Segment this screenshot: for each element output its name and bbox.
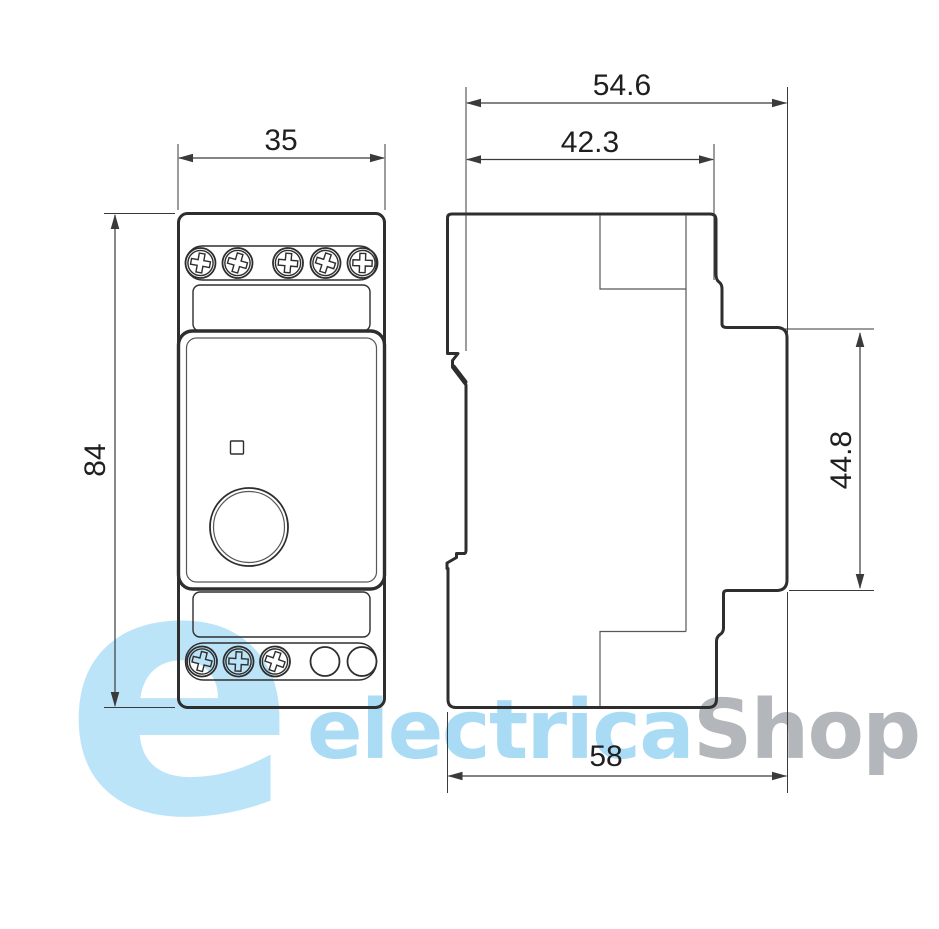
plain-terminal-hole	[348, 647, 377, 676]
brand-electrica: electrica	[307, 683, 693, 778]
dimension-side-overall-depth: 54.6	[466, 69, 788, 351]
arrowhead	[370, 154, 385, 163]
arrowhead	[111, 214, 120, 229]
side-view	[447, 214, 787, 708]
dim-label-84: 84	[79, 443, 112, 476]
arrowhead	[466, 155, 481, 164]
dim-label-58: 58	[589, 740, 622, 773]
dim-label-42-3: 42.3	[561, 126, 619, 159]
dimension-front-width: 35	[178, 124, 385, 210]
arrowhead	[178, 154, 193, 163]
arrowhead	[856, 574, 865, 589]
dim-label-35: 35	[264, 124, 297, 157]
dim-label-54-6: 54.6	[593, 69, 651, 102]
din-clip-wedge	[454, 367, 466, 382]
arrowhead	[466, 99, 481, 108]
screw-head-icon	[221, 247, 254, 280]
dimension-side-front-height: 44.8	[782, 329, 874, 591]
label-window-top	[193, 285, 370, 331]
arrowhead	[856, 332, 865, 347]
brand-shop: Shop	[693, 683, 919, 778]
diagram-svg: e electricaShop	[0, 0, 939, 929]
side-panel-line-top	[600, 215, 686, 289]
side-profile-outline	[447, 214, 787, 708]
product-dimension-diagram: e electricaShop	[0, 0, 939, 929]
screw-head-icon	[272, 247, 305, 280]
screw-head-icon	[186, 248, 216, 278]
dim-label-44-8: 44.8	[825, 431, 858, 489]
arrowhead	[699, 155, 714, 164]
screw-head-icon	[309, 246, 343, 280]
watermark: e electricaShop	[64, 495, 920, 893]
arrowhead	[772, 99, 787, 108]
led-indicator-square	[231, 441, 244, 454]
dimension-side-body-depth: 42.3	[466, 126, 714, 280]
plain-terminal-hole	[311, 647, 340, 676]
screw-head-icon	[346, 246, 380, 280]
